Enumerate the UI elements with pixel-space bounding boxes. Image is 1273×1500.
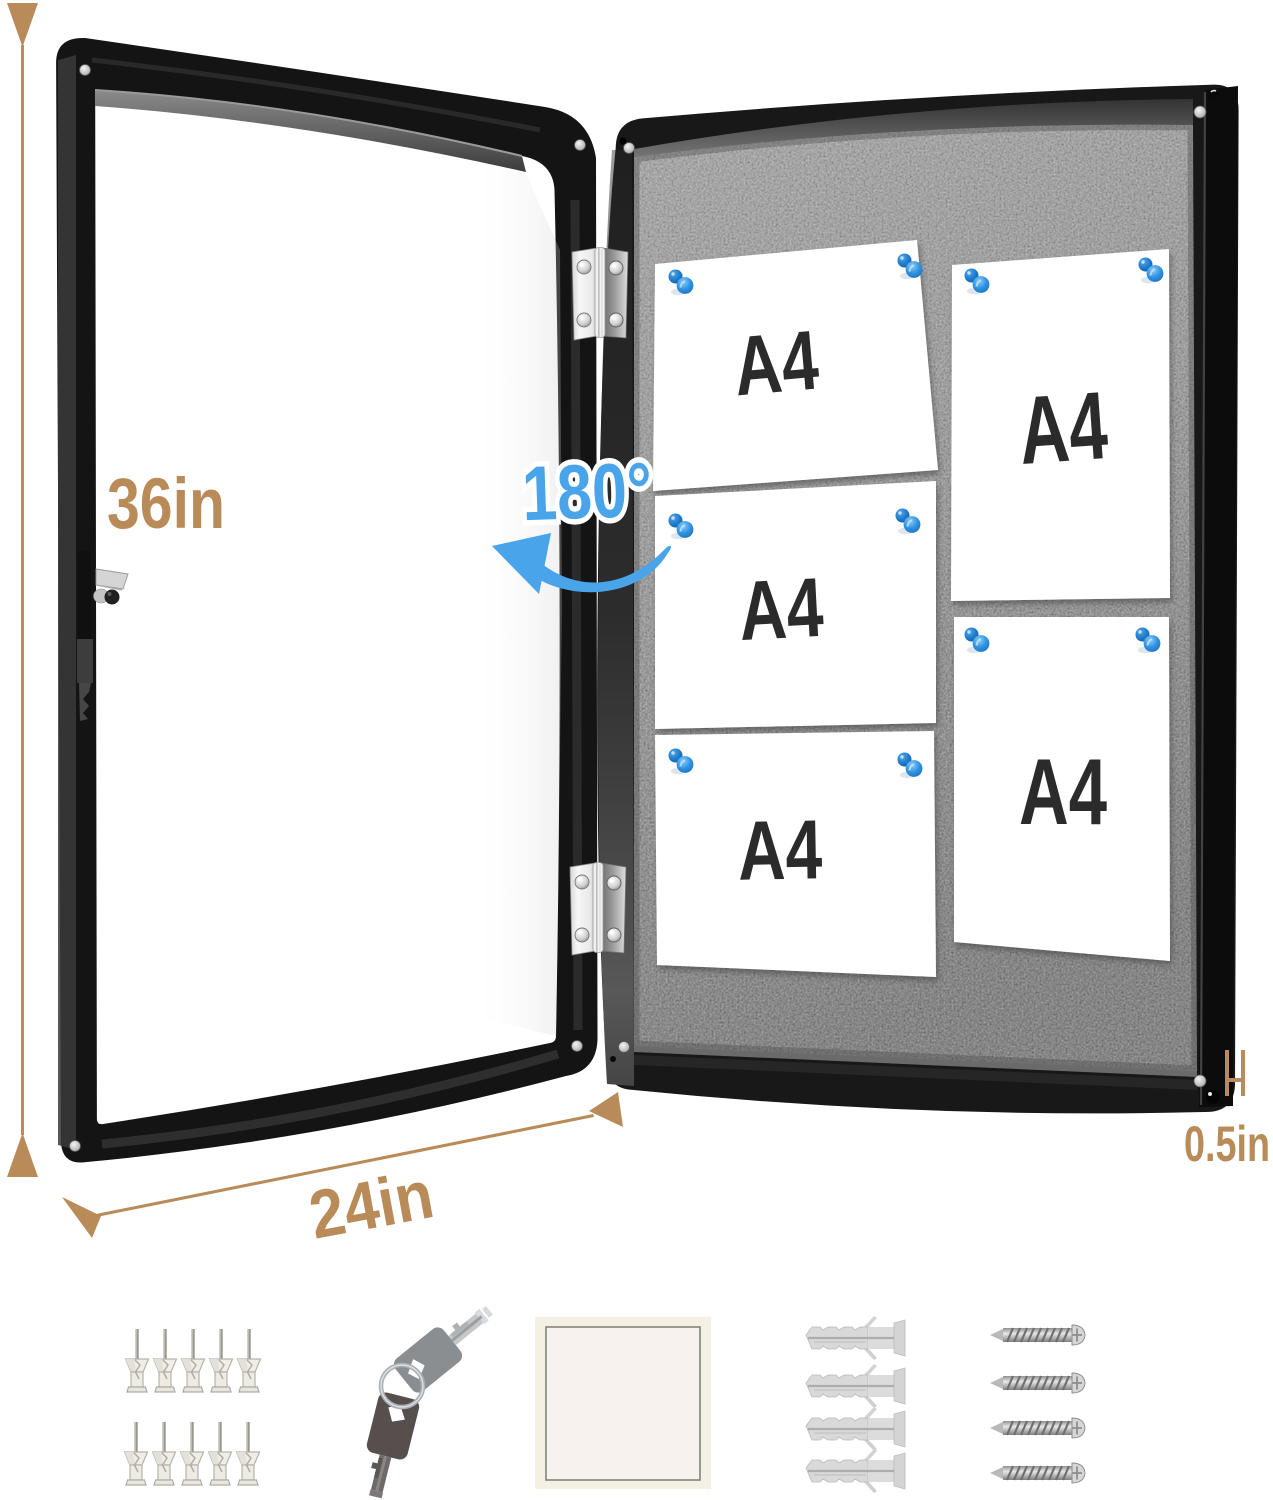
- svg-text:A4: A4: [1019, 739, 1107, 844]
- svg-text:A4: A4: [1015, 372, 1110, 485]
- svg-text:0.5in: 0.5in: [1184, 1116, 1270, 1172]
- svg-text:36in: 36in: [107, 465, 225, 544]
- svg-text:A4: A4: [737, 802, 823, 897]
- svg-text:A4: A4: [730, 312, 822, 413]
- svg-text:A4: A4: [737, 560, 826, 658]
- svg-text:180°: 180°: [521, 447, 654, 537]
